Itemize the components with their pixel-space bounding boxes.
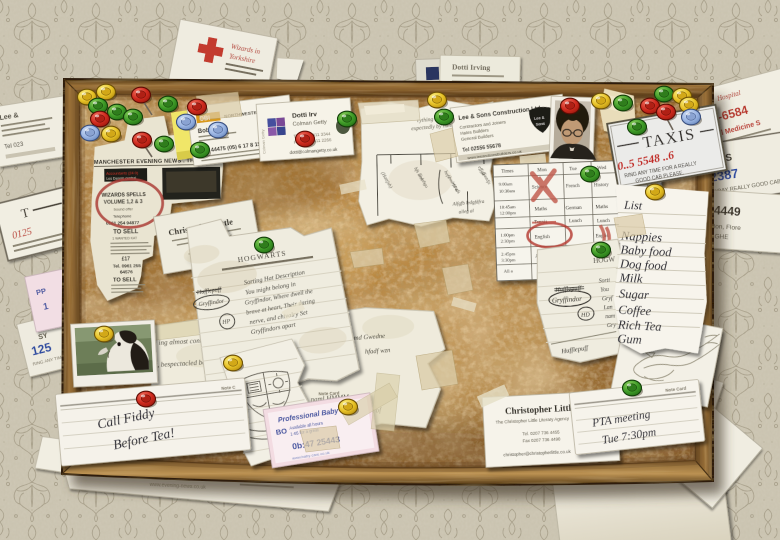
svg-text:bound offer: bound offer bbox=[114, 207, 134, 211]
svg-text:English: English bbox=[535, 235, 551, 241]
svg-text:TO SELL: TO SELL bbox=[113, 229, 139, 235]
svg-text:3:30pm: 3:30pm bbox=[501, 257, 516, 263]
svg-text:Lunch: Lunch bbox=[597, 219, 610, 224]
svg-text:10:30am: 10:30am bbox=[499, 188, 516, 194]
svg-text:WIZARDS SPELLS: WIZARDS SPELLS bbox=[102, 192, 147, 199]
svg-text:You: You bbox=[600, 287, 609, 294]
svg-text:nam: nam bbox=[605, 314, 615, 321]
svg-text:All a: All a bbox=[504, 268, 513, 273]
svg-text:£17: £17 bbox=[122, 256, 131, 262]
svg-text:9:00am: 9:00am bbox=[499, 181, 513, 186]
svg-text:TO SELL: TO SELL bbox=[113, 277, 137, 283]
svg-text:1 WANTED KAT: 1 WANTED KAT bbox=[112, 236, 137, 240]
svg-text:Telephone: Telephone bbox=[113, 213, 132, 218]
svg-text:BO: BO bbox=[275, 426, 288, 437]
svg-text:Gum: Gum bbox=[617, 332, 642, 347]
svg-text:Times: Times bbox=[501, 169, 514, 174]
svg-text:HD: HD bbox=[580, 312, 591, 319]
svg-text:Gry: Gry bbox=[607, 323, 617, 330]
svg-text:Dotti Irving: Dotti Irving bbox=[452, 62, 491, 72]
svg-text:10:45am: 10:45am bbox=[499, 204, 516, 210]
svg-text:VOLUME 1,2 & 3: VOLUME 1,2 & 3 bbox=[104, 199, 143, 206]
svg-text:Milk: Milk bbox=[618, 271, 643, 286]
svg-text:Tue: Tue bbox=[569, 167, 578, 172]
svg-text:Mon: Mon bbox=[537, 168, 547, 173]
svg-text:Coffee: Coffee bbox=[618, 303, 652, 319]
svg-text:List: List bbox=[623, 198, 643, 213]
svg-text:German: German bbox=[566, 206, 583, 212]
svg-text:Englis: Englis bbox=[596, 234, 609, 239]
svg-text:1:00pm: 1:00pm bbox=[500, 232, 515, 238]
svg-text:French: French bbox=[566, 184, 581, 189]
svg-text:2:30pm: 2:30pm bbox=[501, 238, 516, 244]
svg-text:Maths: Maths bbox=[596, 205, 609, 210]
svg-text:Gryf: Gryf bbox=[602, 295, 614, 303]
svg-text:Sugar: Sugar bbox=[619, 287, 650, 303]
svg-text:Lan: Lan bbox=[602, 305, 613, 312]
svg-text:12:00pm: 12:00pm bbox=[500, 210, 517, 216]
svg-text:Lunch: Lunch bbox=[569, 219, 582, 224]
svg-text:Note Card: Note Card bbox=[318, 391, 339, 397]
svg-text:2:45pm: 2:45pm bbox=[501, 251, 516, 257]
svg-text:Maths: Maths bbox=[535, 207, 548, 212]
svg-text:64576: 64576 bbox=[120, 269, 133, 274]
svg-text:History: History bbox=[594, 183, 610, 189]
svg-text:Tel. 0961 255: Tel. 0961 255 bbox=[113, 263, 142, 268]
svg-text:Sorti: Sorti bbox=[599, 278, 611, 285]
svg-text:Accountants (24 0): Accountants (24 0) bbox=[106, 171, 139, 176]
